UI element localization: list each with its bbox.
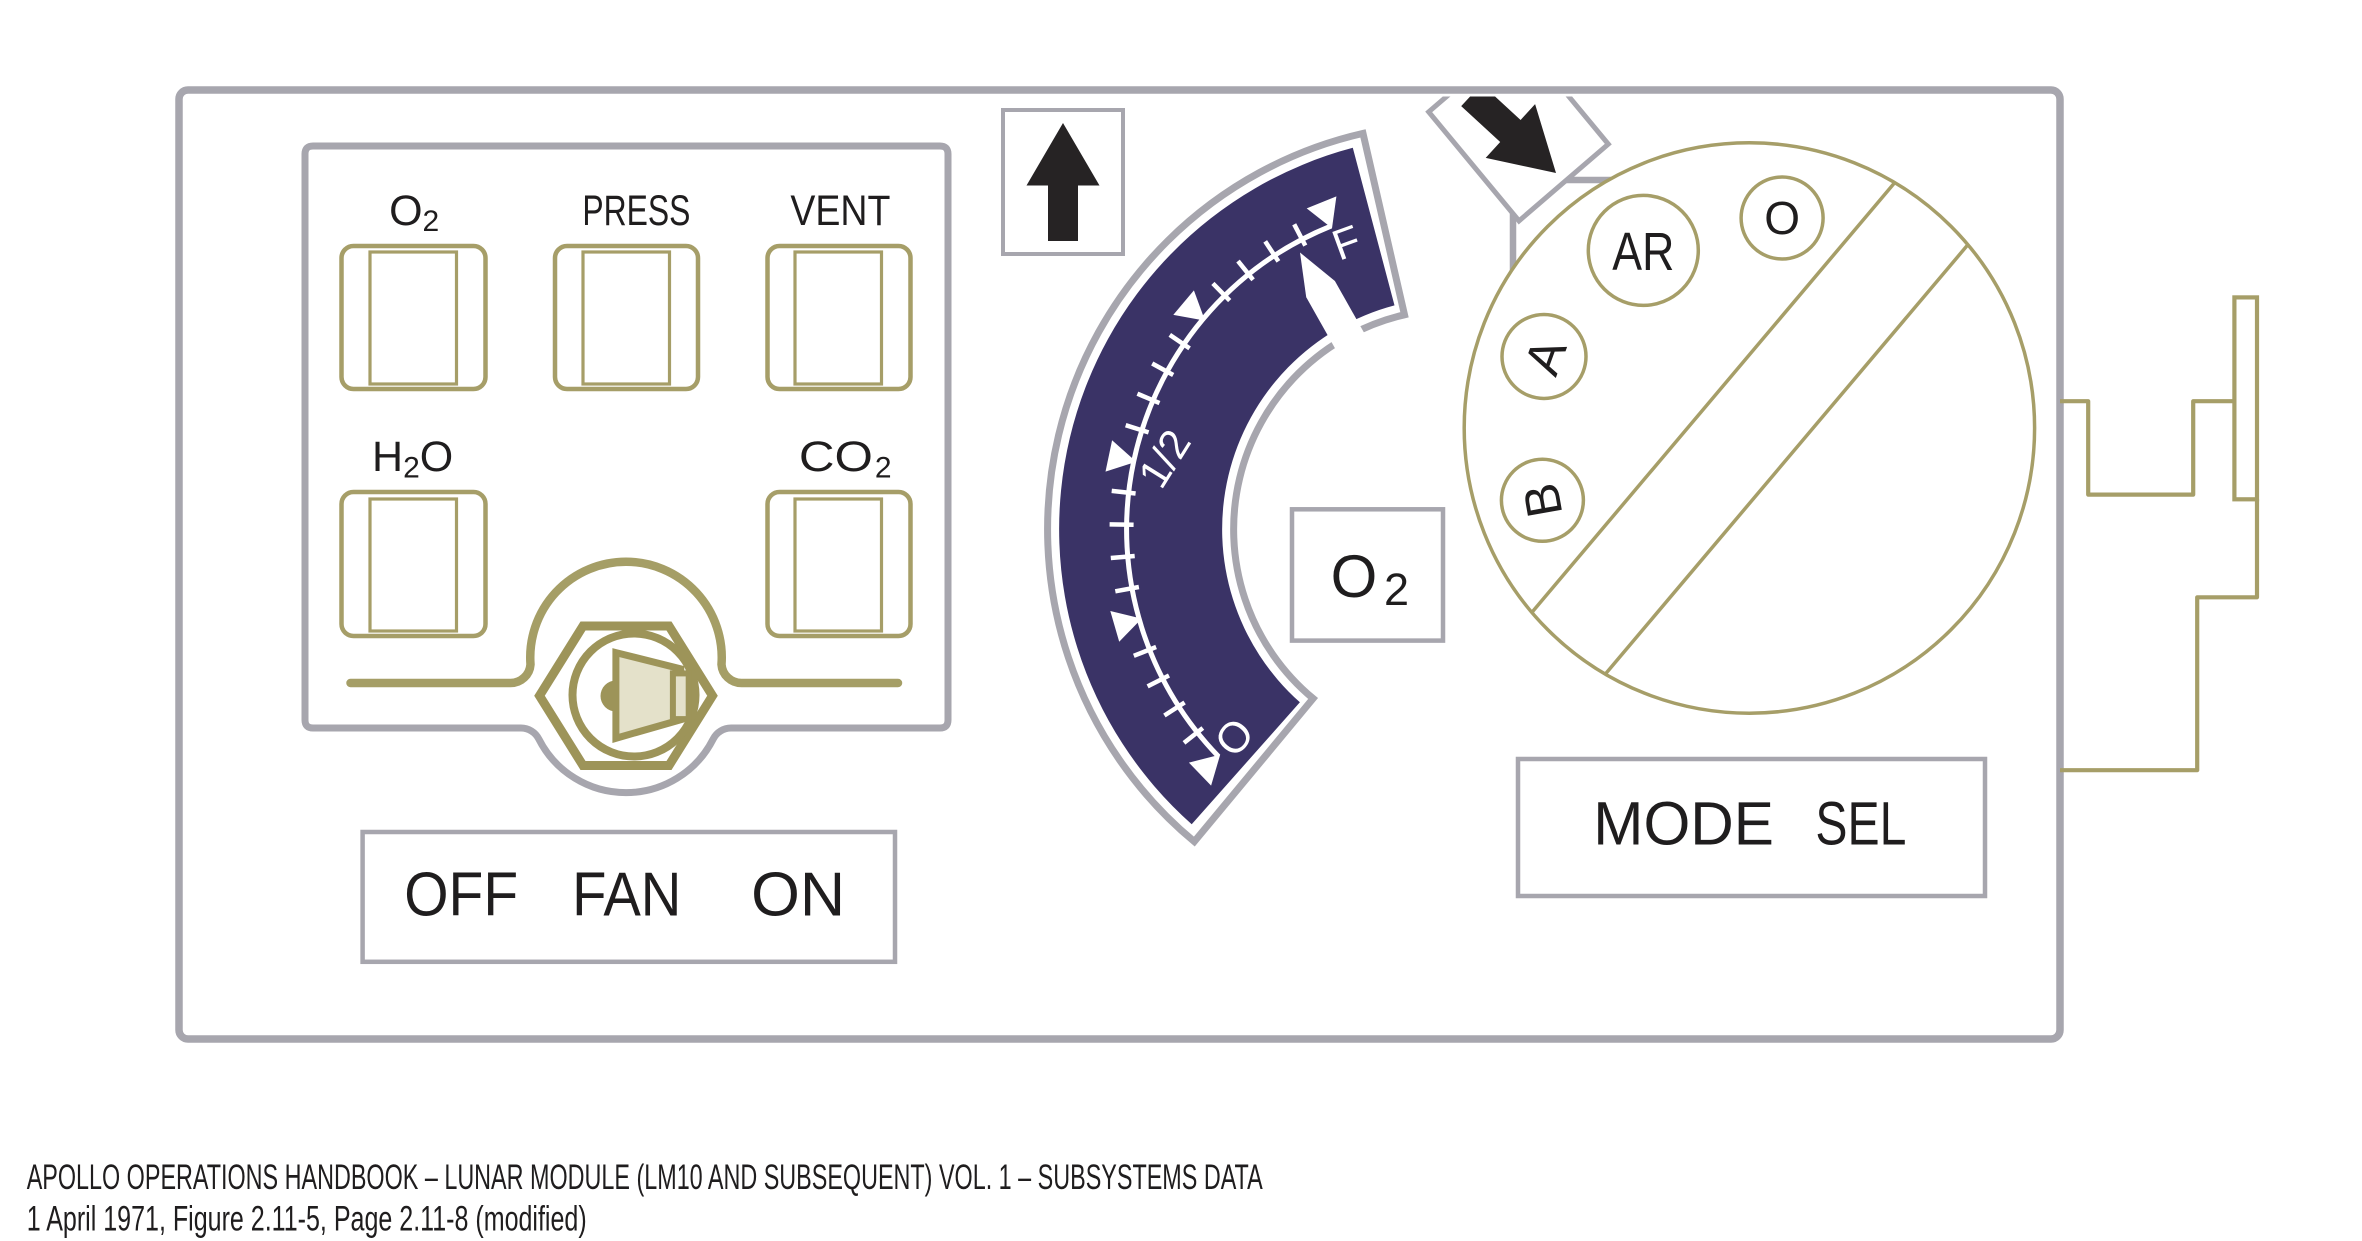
svg-text:APOLLO OPERATIONS HANDBOOK – L: APOLLO OPERATIONS HANDBOOK – LUNAR MODUL… <box>27 1157 1263 1197</box>
svg-text:PRESS: PRESS <box>582 187 690 235</box>
svg-text:FAN: FAN <box>572 861 681 930</box>
svg-text:VENT: VENT <box>790 187 890 235</box>
svg-text:2: 2 <box>1384 564 1409 615</box>
svg-text:CO: CO <box>799 433 873 481</box>
svg-text:AR: AR <box>1612 222 1674 282</box>
svg-text:1 April 1971, Figure 2.11-5, P: 1 April 1971, Figure 2.11-5, Page 2.11-8… <box>27 1198 587 1238</box>
svg-text:ON: ON <box>751 861 845 930</box>
svg-text:MODE: MODE <box>1593 790 1774 858</box>
svg-text:O: O <box>1764 192 1800 244</box>
svg-text:SEL: SEL <box>1815 790 1906 858</box>
svg-text:2: 2 <box>875 451 892 484</box>
svg-text:OFF: OFF <box>404 861 518 930</box>
svg-text:O: O <box>1331 543 1378 610</box>
